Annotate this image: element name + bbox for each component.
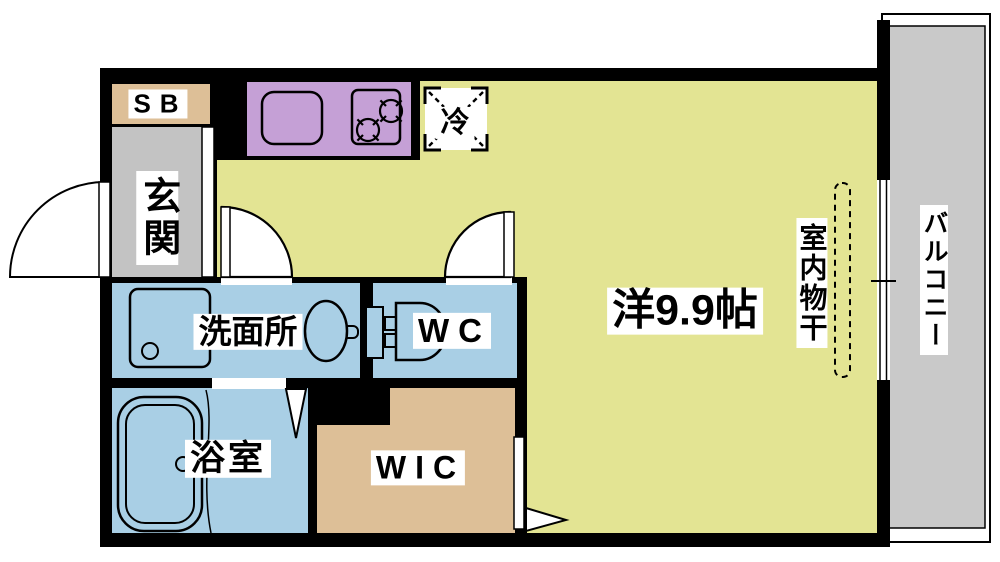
refrigerator-label: 冷 <box>435 107 474 139</box>
washroom-label: 洗面所 <box>194 314 303 350</box>
floorplan: SB 玄関 冷 洋9.9帖 室内物干 バルコニー 洗面所 WC 浴室 WIC <box>0 0 1000 562</box>
wall-stub <box>877 20 890 70</box>
bathroom-label: 浴室 <box>185 440 271 478</box>
indoor-laundry-label: 室内物干 <box>796 218 827 348</box>
balcony-label: バルコニー <box>920 205 948 355</box>
shoe-box-label: SB <box>128 89 187 118</box>
kitchen-sink <box>262 92 322 144</box>
entrance-door <box>10 182 110 277</box>
entrance-partition-door <box>202 127 214 277</box>
entrance-label: 玄関 <box>136 171 178 265</box>
floorplan-drawing <box>0 0 1000 562</box>
western-room-label: 洋9.9帖 <box>607 288 763 335</box>
toilet-label: WC <box>413 313 491 349</box>
walk-in-closet-label: WIC <box>371 450 465 485</box>
